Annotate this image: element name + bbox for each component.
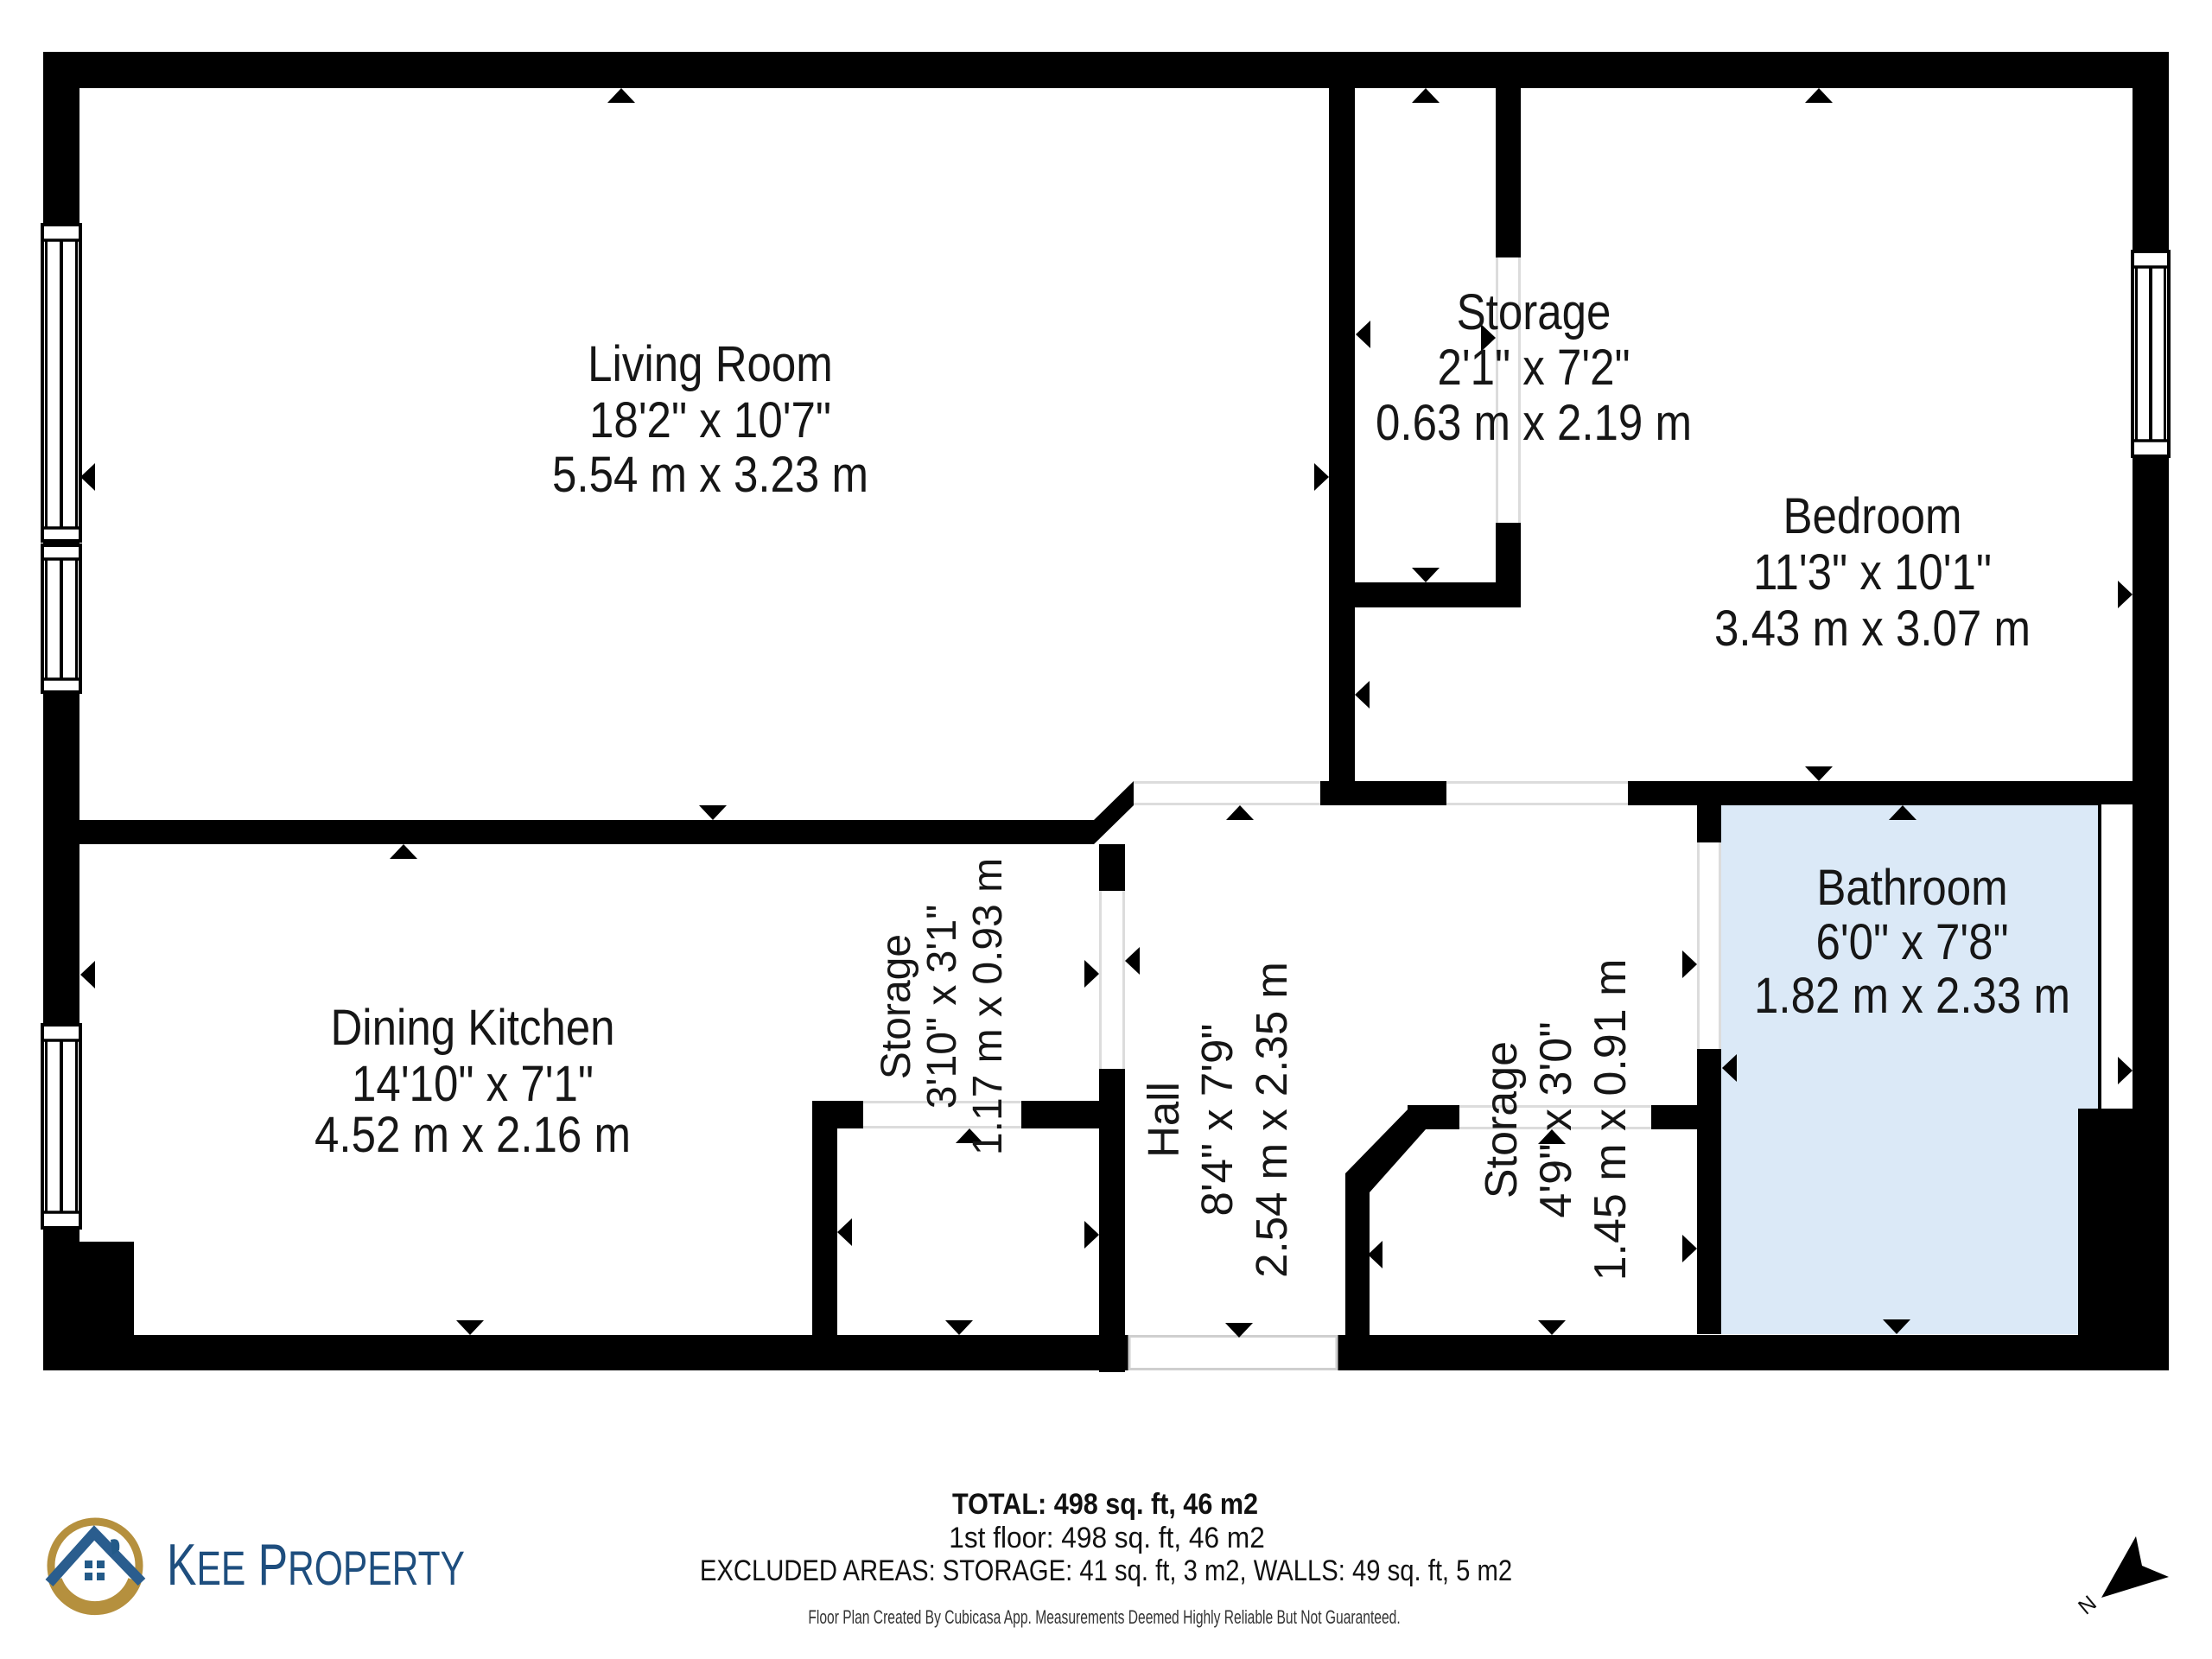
svg-text:8'4" x 7'9": 8'4" x 7'9"	[1192, 1024, 1242, 1217]
svg-text:1.45 m x 0.91 m: 1.45 m x 0.91 m	[1586, 959, 1636, 1281]
svg-text:11'3" x 10'1": 11'3" x 10'1"	[1753, 544, 1992, 601]
svg-text:2'1" x 7'2": 2'1" x 7'2"	[1437, 340, 1630, 396]
svg-text:Storage: Storage	[874, 934, 919, 1079]
svg-text:5.54 m x 3.23 m: 5.54 m x 3.23 m	[552, 447, 868, 503]
svg-text:18'2" x 10'7": 18'2" x 10'7"	[589, 392, 831, 448]
svg-text:Dining Kitchen: Dining Kitchen	[330, 1000, 614, 1056]
svg-text:Bathroom: Bathroom	[1816, 860, 2007, 916]
svg-text:2.54 m x 2.35 m: 2.54 m x 2.35 m	[1247, 962, 1296, 1278]
svg-text:0.63 m x 2.19 m: 0.63 m x 2.19 m	[1376, 395, 1692, 451]
svg-text:6'0" x 7'8": 6'0" x 7'8"	[1815, 914, 2008, 970]
svg-text:4.52 m x 2.16 m: 4.52 m x 2.16 m	[315, 1107, 631, 1163]
svg-text:4'9" x 3'0": 4'9" x 3'0"	[1531, 1021, 1581, 1217]
svg-text:1.82 m x 2.33 m: 1.82 m x 2.33 m	[1754, 968, 2070, 1024]
svg-text:1st floor: 498 sq. ft, 46 m2: 1st floor: 498 sq. ft, 46 m2	[949, 1521, 1265, 1554]
svg-text:Living Room: Living Room	[588, 336, 833, 392]
svg-text:TOTAL: 498 sq. ft, 46 m2: TOTAL: 498 sq. ft, 46 m2	[952, 1488, 1258, 1521]
svg-text:Storage: Storage	[1477, 1041, 1527, 1198]
svg-text:3'10" x 3'1": 3'10" x 3'1"	[919, 905, 965, 1109]
svg-text:Storage: Storage	[1457, 284, 1611, 340]
svg-text:EXCLUDED AREAS: STORAGE: 41 sq: EXCLUDED AREAS: STORAGE: 41 sq. ft, 3 m2…	[700, 1554, 1512, 1587]
svg-text:14'10" x 7'1": 14'10" x 7'1"	[352, 1056, 594, 1112]
svg-text:Floor Plan Created By Cubicasa: Floor Plan Created By Cubicasa App. Meas…	[808, 1608, 1400, 1629]
svg-text:Hall: Hall	[1139, 1082, 1188, 1158]
svg-text:3.43 m x 3.07 m: 3.43 m x 3.07 m	[1714, 601, 2031, 657]
svg-text:Bedroom: Bedroom	[1783, 488, 1961, 544]
svg-text:1.17 m x 0.93 m: 1.17 m x 0.93 m	[965, 858, 1011, 1155]
svg-text:KEE PROPERTY: KEE PROPERTY	[167, 1531, 465, 1598]
